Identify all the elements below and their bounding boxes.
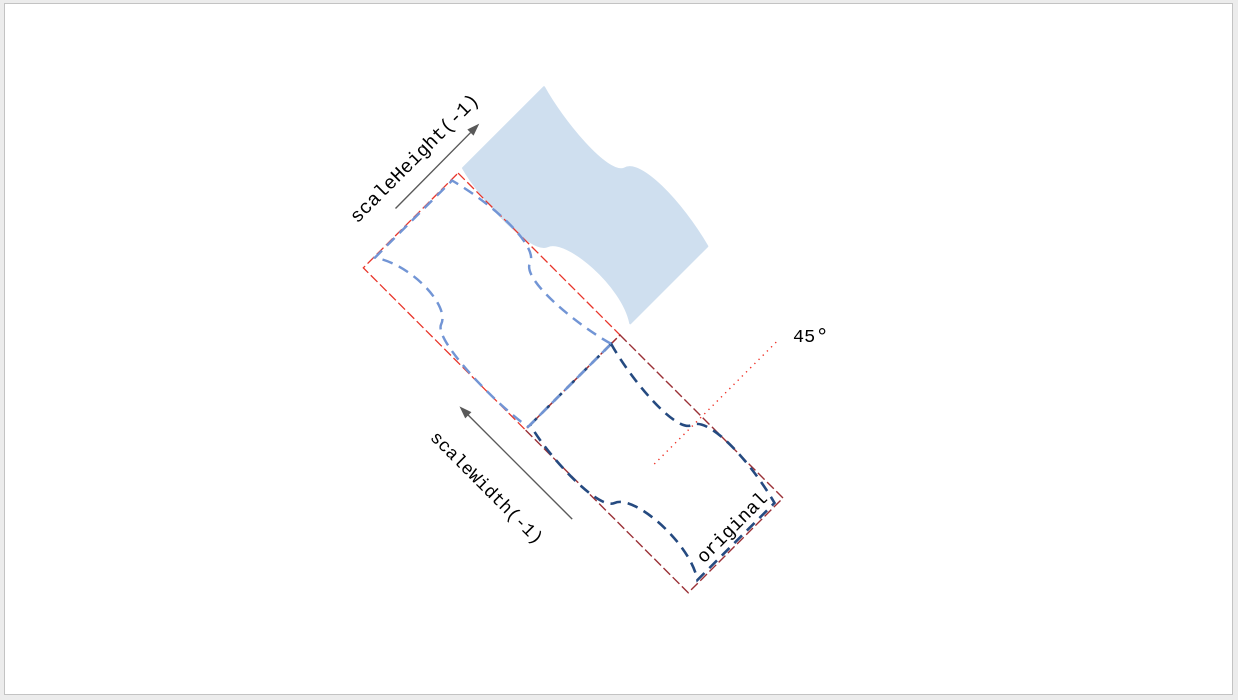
svg-text:scaleWidth(-1): scaleWidth(-1) <box>425 428 546 549</box>
svg-text:scaleHeight(-1): scaleHeight(-1) <box>346 90 484 228</box>
svg-text:45°: 45° <box>793 325 829 351</box>
svg-text:original: original <box>693 488 773 568</box>
